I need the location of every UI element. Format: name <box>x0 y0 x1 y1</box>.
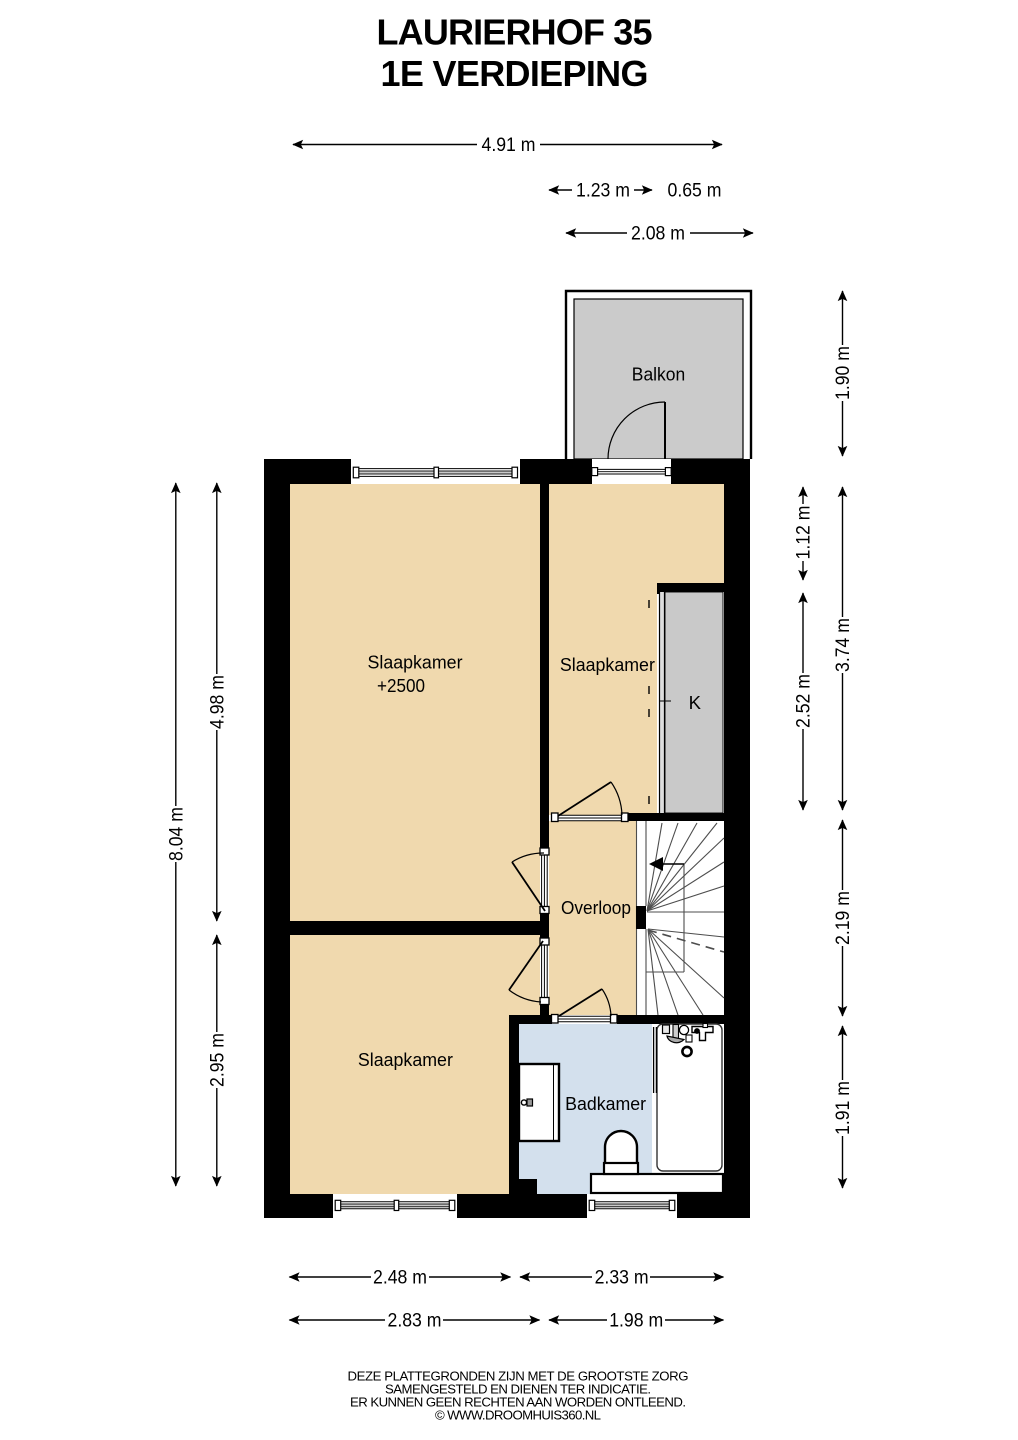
svg-text:2.19 m: 2.19 m <box>833 891 854 945</box>
svg-text:1E VERDIEPING: 1E VERDIEPING <box>381 53 649 94</box>
svg-text:K: K <box>689 692 702 713</box>
svg-text:Badkamer: Badkamer <box>565 1093 646 1114</box>
svg-text:1.98 m: 1.98 m <box>609 1311 663 1332</box>
svg-text:Slaapkamer: Slaapkamer <box>368 652 463 673</box>
svg-text:4.91 m: 4.91 m <box>482 135 536 156</box>
svg-text:2.83 m: 2.83 m <box>388 1311 442 1332</box>
svg-text:© WWW.DROOMHUIS360.NL: © WWW.DROOMHUIS360.NL <box>435 1408 601 1423</box>
svg-text:1.23 m: 1.23 m <box>576 181 630 202</box>
svg-text:2.33 m: 2.33 m <box>595 1268 649 1289</box>
svg-text:2.48 m: 2.48 m <box>373 1268 427 1289</box>
svg-text:0.65 m: 0.65 m <box>668 181 722 202</box>
svg-text:Slaapkamer: Slaapkamer <box>560 654 655 675</box>
svg-text:1.12 m: 1.12 m <box>794 506 815 560</box>
svg-text:1.90 m: 1.90 m <box>833 346 854 400</box>
svg-text:1.91 m: 1.91 m <box>833 1081 854 1135</box>
svg-text:Balkon: Balkon <box>632 363 685 384</box>
svg-text:2.52 m: 2.52 m <box>794 674 815 728</box>
svg-text:2.08 m: 2.08 m <box>631 224 685 245</box>
svg-text:3.74 m: 3.74 m <box>833 618 854 672</box>
svg-text:+2500: +2500 <box>377 675 425 696</box>
svg-text:Slaapkamer: Slaapkamer <box>358 1049 453 1070</box>
svg-text:Overloop: Overloop <box>561 897 631 918</box>
svg-text:8.04 m: 8.04 m <box>166 807 187 861</box>
svg-text:2.95 m: 2.95 m <box>207 1033 228 1087</box>
svg-text:LAURIERHOF 35: LAURIERHOF 35 <box>377 12 653 53</box>
svg-text:4.98 m: 4.98 m <box>207 675 228 729</box>
